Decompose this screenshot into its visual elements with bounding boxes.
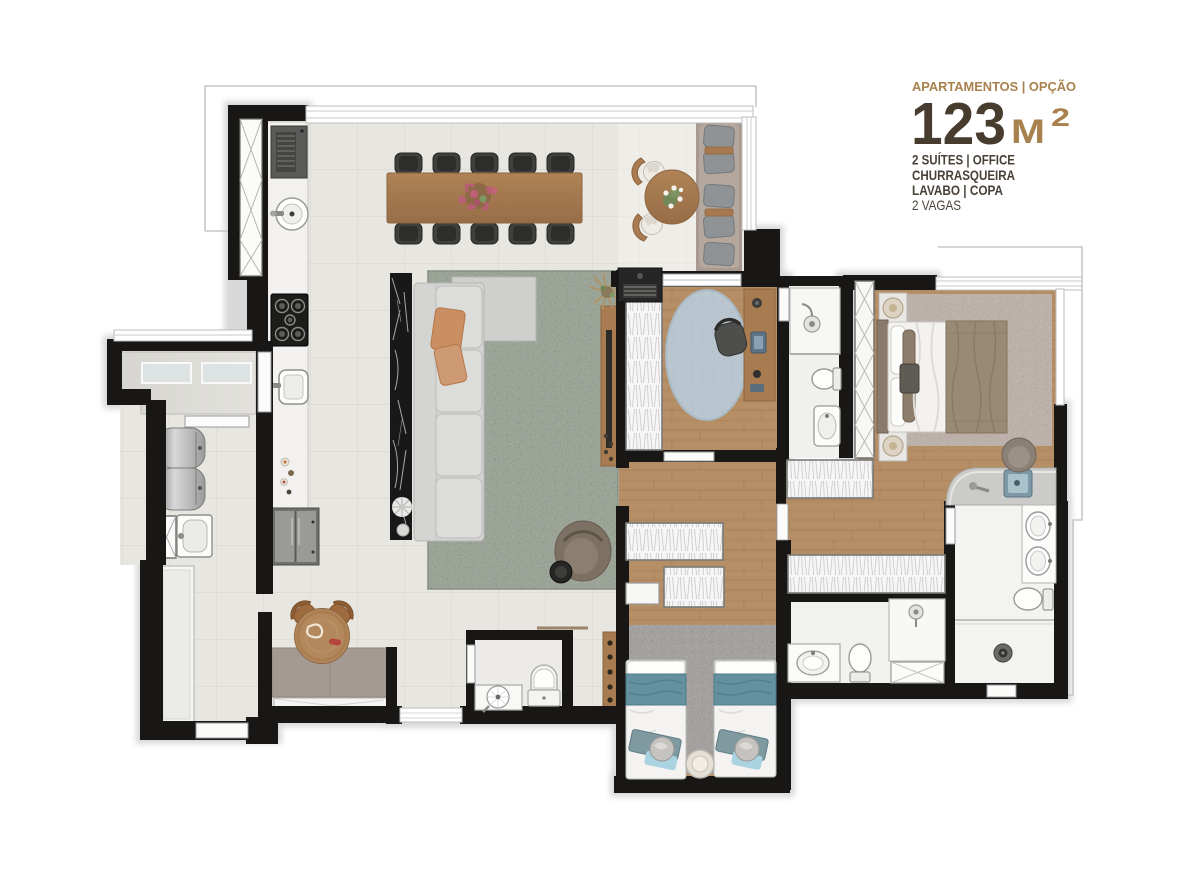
svg-text:2 VAGAS: 2 VAGAS bbox=[912, 197, 961, 213]
svg-text:LAVABO | COPA: LAVABO | COPA bbox=[912, 182, 1003, 198]
svg-text:2 SUÍTES | OFFICE: 2 SUÍTES | OFFICE bbox=[912, 152, 1015, 168]
svg-text:123: 123 bbox=[911, 91, 1006, 157]
svg-text:CHURRASQUEIRA: CHURRASQUEIRA bbox=[912, 167, 1015, 183]
svg-text:M: M bbox=[1011, 113, 1045, 151]
svg-text:2: 2 bbox=[1051, 104, 1070, 132]
